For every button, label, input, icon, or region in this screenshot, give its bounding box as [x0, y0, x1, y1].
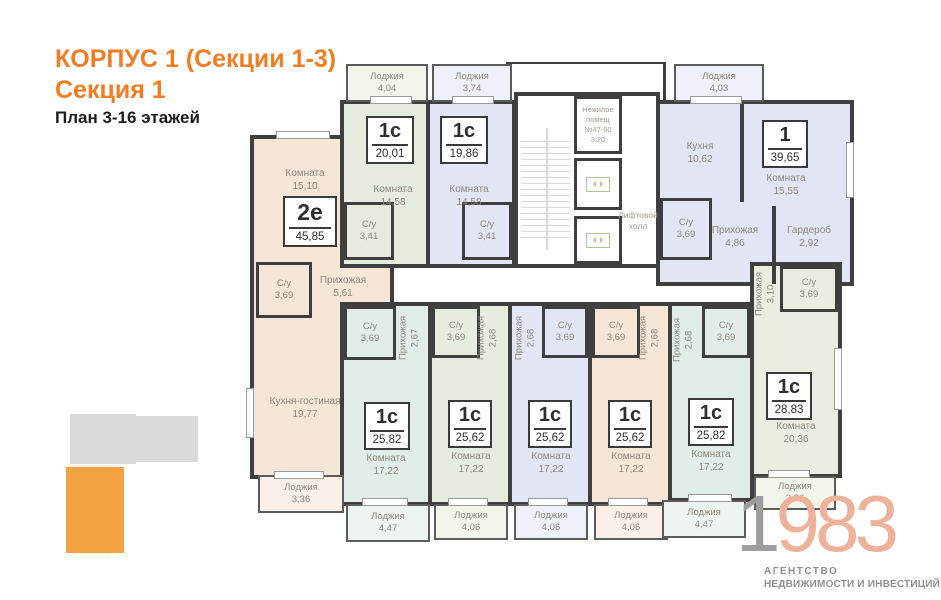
bathroom-b2: С/у3,69 — [432, 306, 480, 358]
nonres-line1: Нежилое — [582, 105, 614, 115]
loggia-name: Лоджия — [284, 482, 318, 494]
bath-name: С/у — [447, 320, 466, 332]
window-marker — [370, 96, 412, 104]
room-name: Комната — [438, 450, 504, 463]
apartment-type: 1с — [694, 403, 728, 428]
type-badge-1-3965: 1 39,65 — [762, 120, 808, 168]
type-badge-1c-2001: 1с 20,01 — [366, 116, 414, 164]
room-name: Прихожая — [700, 224, 770, 237]
window-marker — [690, 96, 742, 104]
room-label-2e-komnata: Комната 15,10 — [265, 167, 345, 193]
room-area: 2,68 — [526, 309, 538, 367]
window-marker — [688, 494, 732, 502]
room-area: 14,58 — [434, 196, 504, 209]
loggia-name: Лоджия — [687, 507, 721, 519]
plan-header: КОРПУС 1 (Секции 1-3) Секция 1 План 3-16… — [55, 44, 336, 128]
room-name: Кухня-гостиная — [250, 395, 360, 408]
bathroom-1c-2001: С/у3,41 — [344, 202, 394, 260]
window-marker — [768, 470, 810, 478]
room-area: 2,68 — [488, 309, 500, 367]
elevator-hall-label: Лифтовой холл — [612, 210, 664, 232]
agency-logo: 1983 АГЕНТСТВО НЕДВИЖИМОСТИ И ИНВЕСТИЦИЙ — [736, 484, 941, 590]
logo-tagline-2: НЕДВИЖИМОСТИ И ИНВЕСТИЦИЙ — [764, 579, 941, 590]
room-area: 10,62 — [668, 153, 732, 166]
elevator-hall-line1: Лифтовой — [612, 210, 664, 221]
type-badge-b4: 1с 25,62 — [608, 400, 652, 448]
apartment-type: 1с — [372, 121, 408, 146]
window-marker — [448, 498, 488, 506]
window-marker — [834, 348, 842, 410]
bath-area: 3,69 — [800, 289, 819, 301]
window-marker — [452, 96, 494, 104]
room-label-b4-komnata: Комната 17,22 — [598, 450, 664, 476]
elevator-shaft-1 — [574, 158, 622, 210]
bathroom-b5: С/у3,69 — [702, 306, 750, 358]
room-name: Гардероб — [774, 224, 844, 237]
hall-label-b1: Прихожая 2,67 — [398, 309, 423, 367]
room-label-2e-hall: Прихожая 5,61 — [308, 274, 378, 300]
room-name: Кухня — [668, 140, 732, 153]
room-name: Комната — [748, 172, 824, 185]
floorplan-page: КОРПУС 1 (Секции 1-3) Секция 1 План 3-16… — [0, 0, 941, 600]
loggia-name: Лоджия — [371, 511, 405, 523]
hall-label-a5: Прихожая 3,10 — [754, 265, 779, 323]
apartment-type: 2е — [289, 201, 331, 229]
room-area: 17,22 — [518, 463, 584, 476]
hall-label-b5: Прихожая 2,68 — [672, 311, 697, 369]
room-name: Комната — [350, 452, 422, 465]
bathroom-b3: С/у3,69 — [542, 306, 588, 358]
room-area: 2,68 — [684, 311, 696, 369]
room-label-b2-komnata: Комната 17,22 — [438, 450, 504, 476]
window-marker — [528, 498, 568, 506]
room-label-a2-komnata: Комната 14,58 — [358, 183, 428, 209]
nonresidential-room: Нежилое помещ №47-60 3,20 — [574, 96, 622, 154]
room-area: 20,36 — [758, 433, 834, 446]
bath-area: 3,41 — [478, 231, 497, 243]
type-badge-b2: 1с 25,62 — [448, 400, 492, 448]
wall — [740, 104, 744, 202]
room-name: Прихожая — [398, 309, 410, 367]
apartment-total-area: 19,86 — [446, 146, 482, 160]
logo-digit-gray: 1 — [736, 479, 776, 568]
bath-name: С/у — [800, 277, 819, 289]
window-marker — [362, 498, 408, 506]
type-badge-b1: 1с 25,82 — [364, 402, 410, 450]
bath-name: С/у — [677, 217, 696, 229]
loggia-area: 4,47 — [371, 523, 405, 535]
apartment-type: 1с — [370, 407, 404, 432]
bath-area: 3,69 — [361, 333, 380, 345]
elevator-icon — [586, 233, 610, 248]
stairs — [521, 136, 570, 242]
room-name: Прихожая — [476, 309, 488, 367]
room-name: Комната — [518, 450, 584, 463]
apartment-total-area: 28,83 — [772, 402, 806, 416]
type-badge-b3: 1с 25,62 — [528, 400, 572, 448]
bath-name: С/у — [275, 278, 294, 290]
bath-name: С/у — [717, 320, 736, 332]
apartment-total-area: 20,01 — [372, 146, 408, 160]
apartment-type: 1с — [614, 405, 646, 430]
bath-name: С/у — [361, 321, 380, 333]
window-marker — [274, 471, 324, 479]
room-name: Комната — [758, 420, 834, 433]
apartment-total-area: 25,62 — [454, 430, 486, 444]
hall-label-b4: Прихожая 2,68 — [638, 309, 663, 367]
room-area: 17,22 — [676, 461, 746, 474]
bathroom-b1: С/у3,69 — [344, 306, 396, 360]
loggia-name: Лоджия — [454, 510, 488, 522]
bath-area: 3,69 — [447, 332, 466, 344]
bathroom-2e: С/у3,69 — [256, 262, 312, 318]
keyplan-section-3 — [136, 416, 198, 462]
loggia-b3: Лоджия4,06 — [514, 504, 588, 540]
apartment-total-area: 45,85 — [289, 229, 331, 243]
apartment-type: 1 — [768, 125, 802, 150]
elevator-icon — [586, 177, 610, 192]
bath-area: 3,69 — [607, 332, 626, 344]
room-area: 2,67 — [410, 309, 422, 367]
room-area: 15,10 — [265, 180, 345, 193]
window-marker — [608, 498, 648, 506]
loggia-name: Лоджия — [370, 71, 404, 83]
room-area: 17,22 — [598, 463, 664, 476]
room-name: Комната — [358, 183, 428, 196]
building-title: КОРПУС 1 (Секции 1-3) — [55, 44, 336, 75]
apartment-total-area: 39,65 — [768, 150, 802, 164]
room-area: 19,77 — [250, 408, 360, 421]
loggia-name: Лоджия — [702, 71, 736, 83]
hall-label-b3: Прихожая 2,68 — [514, 309, 539, 367]
loggia-area: 3,36 — [284, 494, 318, 506]
loggia-name: Лоджия — [455, 71, 489, 83]
window-marker — [246, 388, 254, 438]
type-badge-2e: 2е 45,85 — [283, 196, 337, 247]
nonres-line4: 3,20 — [582, 135, 614, 145]
loggia-name: Лоджия — [614, 510, 648, 522]
apartment-type: 1с — [534, 405, 566, 430]
loggia-area: 4,03 — [702, 83, 736, 95]
room-label-a5-komnata: Комната 20,36 — [758, 420, 834, 446]
bathroom-1c-1986: С/у3,41 — [462, 202, 512, 260]
bath-area: 3,69 — [275, 290, 294, 302]
bath-name: С/у — [556, 320, 575, 332]
apartment-type: 1с — [772, 377, 806, 402]
apartment-total-area: 25,82 — [694, 428, 728, 442]
apartment-total-area: 25,62 — [614, 430, 646, 444]
bathroom-b4: С/у3,69 — [592, 306, 640, 358]
bath-area: 3,69 — [556, 332, 575, 344]
logo-digits-salmon: 983 — [776, 479, 894, 568]
bath-area: 3,69 — [677, 229, 696, 241]
loggia-name: Лоджия — [534, 510, 568, 522]
bath-name: С/у — [478, 219, 497, 231]
room-label-a3-komnata: Комната 14,58 — [434, 183, 504, 209]
room-label-b1-komnata: Комната 17,22 — [350, 452, 422, 478]
room-area: 2,68 — [650, 309, 662, 367]
bath-area: 3,69 — [717, 332, 736, 344]
room-name: Прихожая — [672, 311, 684, 369]
room-area: 5,61 — [308, 287, 378, 300]
loggia-area: 4,06 — [614, 522, 648, 534]
room-area: 17,22 — [438, 463, 504, 476]
apartment-total-area: 25,62 — [534, 430, 566, 444]
floors-subtitle: План 3-16 этажей — [55, 108, 336, 128]
room-area: 15,55 — [748, 185, 824, 198]
loggia-b2: Лоджия4,06 — [434, 504, 508, 540]
room-area: 2,92 — [774, 237, 844, 250]
type-badge-1c-2883: 1с 28,83 — [766, 372, 812, 420]
room-area: 14,58 — [358, 196, 428, 209]
logo-year: 1983 — [736, 484, 941, 564]
loggia-area: 4,47 — [687, 519, 721, 531]
bath-name: С/у — [360, 219, 379, 231]
bath-area: 3,41 — [360, 231, 379, 243]
loggia-2e: Лоджия3,36 — [258, 475, 344, 513]
window-marker — [276, 131, 330, 139]
loggia-area: 4,06 — [454, 522, 488, 534]
section-title: Секция 1 — [55, 75, 336, 106]
bathroom-1c-2883: С/у3,69 — [780, 266, 838, 312]
room-area: 3,10 — [766, 265, 778, 323]
room-name: Прихожая — [638, 309, 650, 367]
room-name: Комната — [598, 450, 664, 463]
room-label-b5-komnata: Комната 17,22 — [676, 448, 746, 474]
loggia-b1: Лоджия4,47 — [346, 504, 430, 542]
apartment-type: 1с — [446, 121, 482, 146]
room-label-a4-wardrobe: Гардероб 2,92 — [774, 224, 844, 250]
nonres-line3: №47-60 — [582, 125, 614, 135]
room-name: Комната — [676, 448, 746, 461]
room-label-a4-hall: Прихожая 4,86 — [700, 224, 770, 250]
room-name: Комната — [265, 167, 345, 180]
loggia-area: 4,04 — [370, 83, 404, 95]
loggia-b4: Лоджия4,06 — [594, 504, 668, 540]
room-name: Комната — [434, 183, 504, 196]
loggia-b5: Лоджия4,47 — [662, 500, 746, 538]
type-badge-b5: 1с 25,82 — [688, 398, 734, 446]
room-name: Прихожая — [514, 309, 526, 367]
room-area: 17,22 — [350, 465, 422, 478]
loggia-area: 3,74 — [455, 83, 489, 95]
room-label-a4-komnata: Комната 15,55 — [748, 172, 824, 198]
elevator-hall-line2: холл — [612, 221, 664, 232]
room-name: Прихожая — [308, 274, 378, 287]
room-label-b3-komnata: Комната 17,22 — [518, 450, 584, 476]
type-badge-1c-1986: 1с 19,86 — [440, 116, 488, 164]
apartment-type: 1с — [454, 405, 486, 430]
apartment-total-area: 25,82 — [370, 432, 404, 446]
keyplan-section-2 — [70, 414, 136, 464]
room-label-a4-kitchen: Кухня 10,62 — [668, 140, 732, 166]
nonres-line2: помещ — [582, 115, 614, 125]
room-label-2e-kitchen: Кухня-гостиная 19,77 — [250, 395, 360, 421]
room-area: 4,86 — [700, 237, 770, 250]
window-marker — [846, 142, 854, 198]
hall-label-b2: Прихожая 2,68 — [476, 309, 501, 367]
loggia-area: 4,06 — [534, 522, 568, 534]
bath-name: С/у — [607, 320, 626, 332]
keyplan-section-1-highlight — [66, 467, 124, 553]
room-name: Прихожая — [754, 265, 766, 323]
